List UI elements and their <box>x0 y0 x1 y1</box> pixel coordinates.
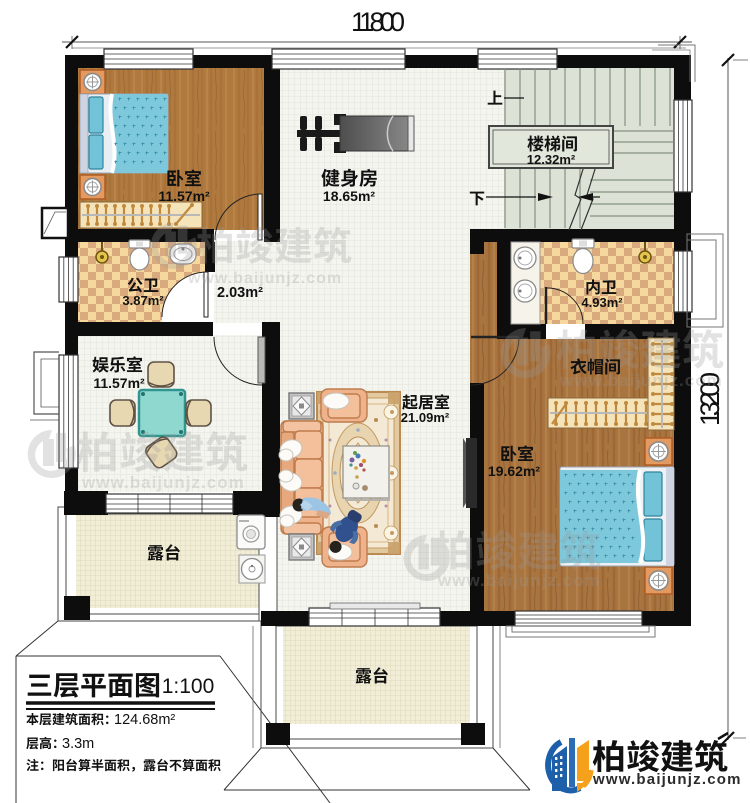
svg-text:11.57m²: 11.57m² <box>158 188 210 204</box>
svg-text:12.32m²: 12.32m² <box>527 152 576 167</box>
svg-text:4.93m²: 4.93m² <box>581 295 623 310</box>
svg-text:18.65m²: 18.65m² <box>323 188 375 204</box>
svg-text:www.baijunjz.com: www.baijunjz.com <box>559 371 723 390</box>
svg-text:124.68m²: 124.68m² <box>114 712 175 728</box>
svg-text:11800: 11800 <box>351 7 405 37</box>
svg-text:www.baijunjz.com: www.baijunjz.com <box>187 270 342 287</box>
svg-text:11.57m²: 11.57m² <box>93 375 145 391</box>
svg-text:2.03m²: 2.03m² <box>217 285 263 301</box>
svg-text:19.62m²: 19.62m² <box>488 463 540 479</box>
svg-text:www.baijunjz.com: www.baijunjz.com <box>437 571 601 590</box>
svg-text:1:100: 1:100 <box>162 675 215 698</box>
svg-text:www.baijunjz.com: www.baijunjz.com <box>81 473 245 492</box>
svg-text:www.baijunjz.com: www.baijunjz.com <box>592 771 742 788</box>
svg-text:21.09m²: 21.09m² <box>401 410 450 425</box>
svg-text:3.87m²: 3.87m² <box>122 293 164 308</box>
svg-text:3.3m: 3.3m <box>62 736 94 752</box>
